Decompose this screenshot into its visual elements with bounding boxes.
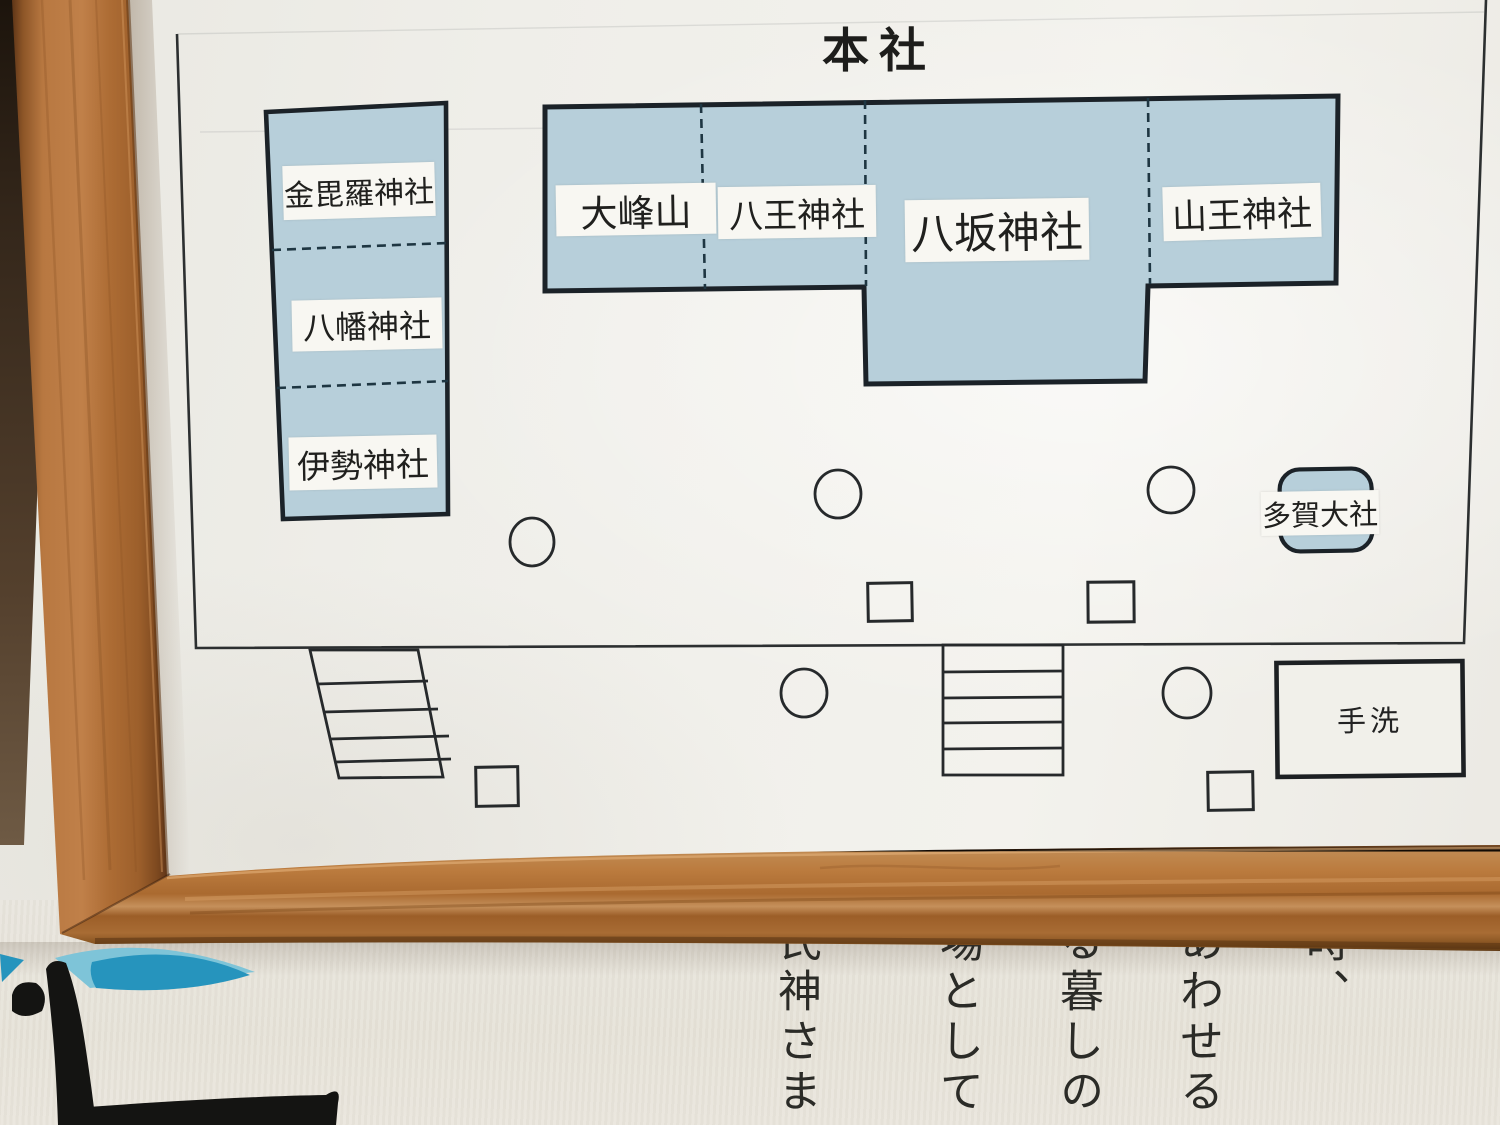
wooden-frame	[0, 0, 1500, 1125]
photo-of-shrine-map-sign: 本社 金毘羅神社 八幡神社 伊勢神社 大峰山 八王神社 八坂神社 山王神社 多賀…	[0, 0, 1500, 1125]
